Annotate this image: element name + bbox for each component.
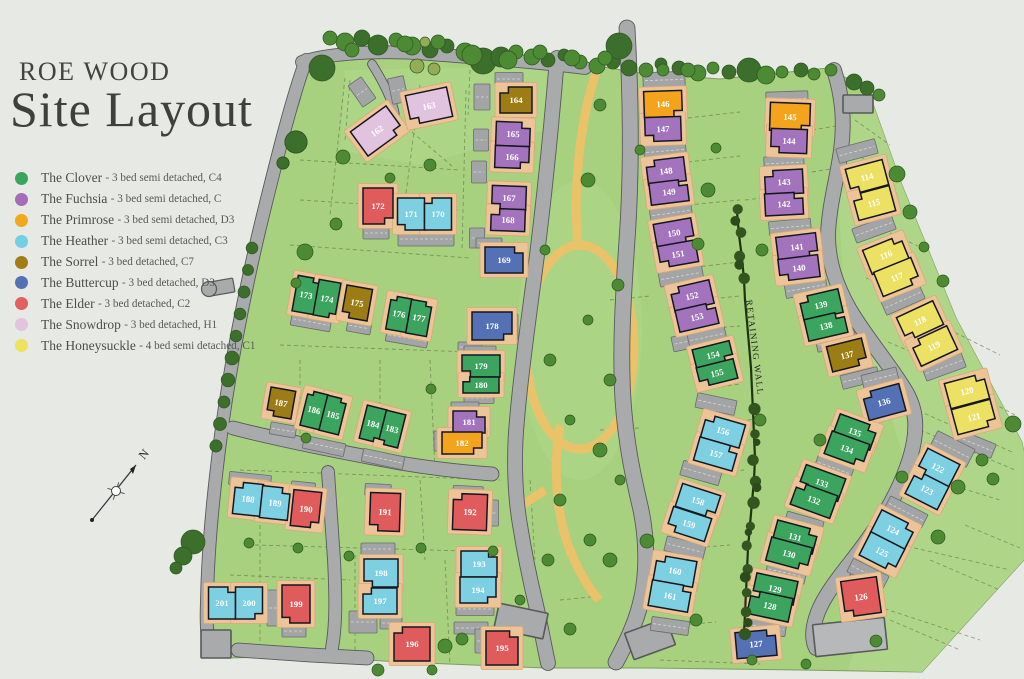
svg-text:143: 143 <box>777 177 791 188</box>
svg-text:142: 142 <box>777 199 791 210</box>
svg-text:178: 178 <box>485 321 499 331</box>
svg-text:190: 190 <box>299 503 314 514</box>
svg-text:180: 180 <box>474 380 488 390</box>
svg-text:195: 195 <box>495 643 509 653</box>
svg-text:188: 188 <box>241 493 256 504</box>
svg-text:179: 179 <box>474 361 488 371</box>
svg-text:170: 170 <box>431 209 445 219</box>
svg-text:182: 182 <box>455 438 469 448</box>
svg-text:199: 199 <box>289 599 303 609</box>
svg-text:146: 146 <box>656 99 670 109</box>
svg-text:148: 148 <box>659 165 674 177</box>
svg-text:197: 197 <box>373 596 387 606</box>
svg-text:201: 201 <box>215 598 228 608</box>
svg-text:198: 198 <box>374 568 388 578</box>
svg-text:140: 140 <box>792 262 807 274</box>
svg-text:194: 194 <box>471 585 485 595</box>
svg-text:181: 181 <box>462 417 475 427</box>
svg-text:147: 147 <box>656 124 670 134</box>
svg-text:200: 200 <box>242 598 256 608</box>
svg-text:165: 165 <box>506 129 520 139</box>
svg-text:145: 145 <box>783 112 797 122</box>
svg-text:193: 193 <box>472 559 486 569</box>
svg-text:149: 149 <box>662 186 677 198</box>
svg-text:191: 191 <box>378 507 392 517</box>
svg-text:172: 172 <box>371 201 385 211</box>
svg-text:196: 196 <box>405 639 419 649</box>
svg-text:168: 168 <box>501 215 515 225</box>
svg-text:141: 141 <box>790 241 804 253</box>
svg-text:126: 126 <box>854 591 869 603</box>
svg-text:171: 171 <box>404 209 417 219</box>
svg-text:164: 164 <box>509 95 523 105</box>
svg-text:189: 189 <box>268 497 283 508</box>
svg-text:127: 127 <box>749 638 764 649</box>
svg-text:192: 192 <box>463 507 477 517</box>
svg-text:144: 144 <box>782 136 796 146</box>
svg-text:169: 169 <box>497 255 511 265</box>
svg-text:167: 167 <box>502 193 516 203</box>
svg-text:166: 166 <box>505 152 519 162</box>
